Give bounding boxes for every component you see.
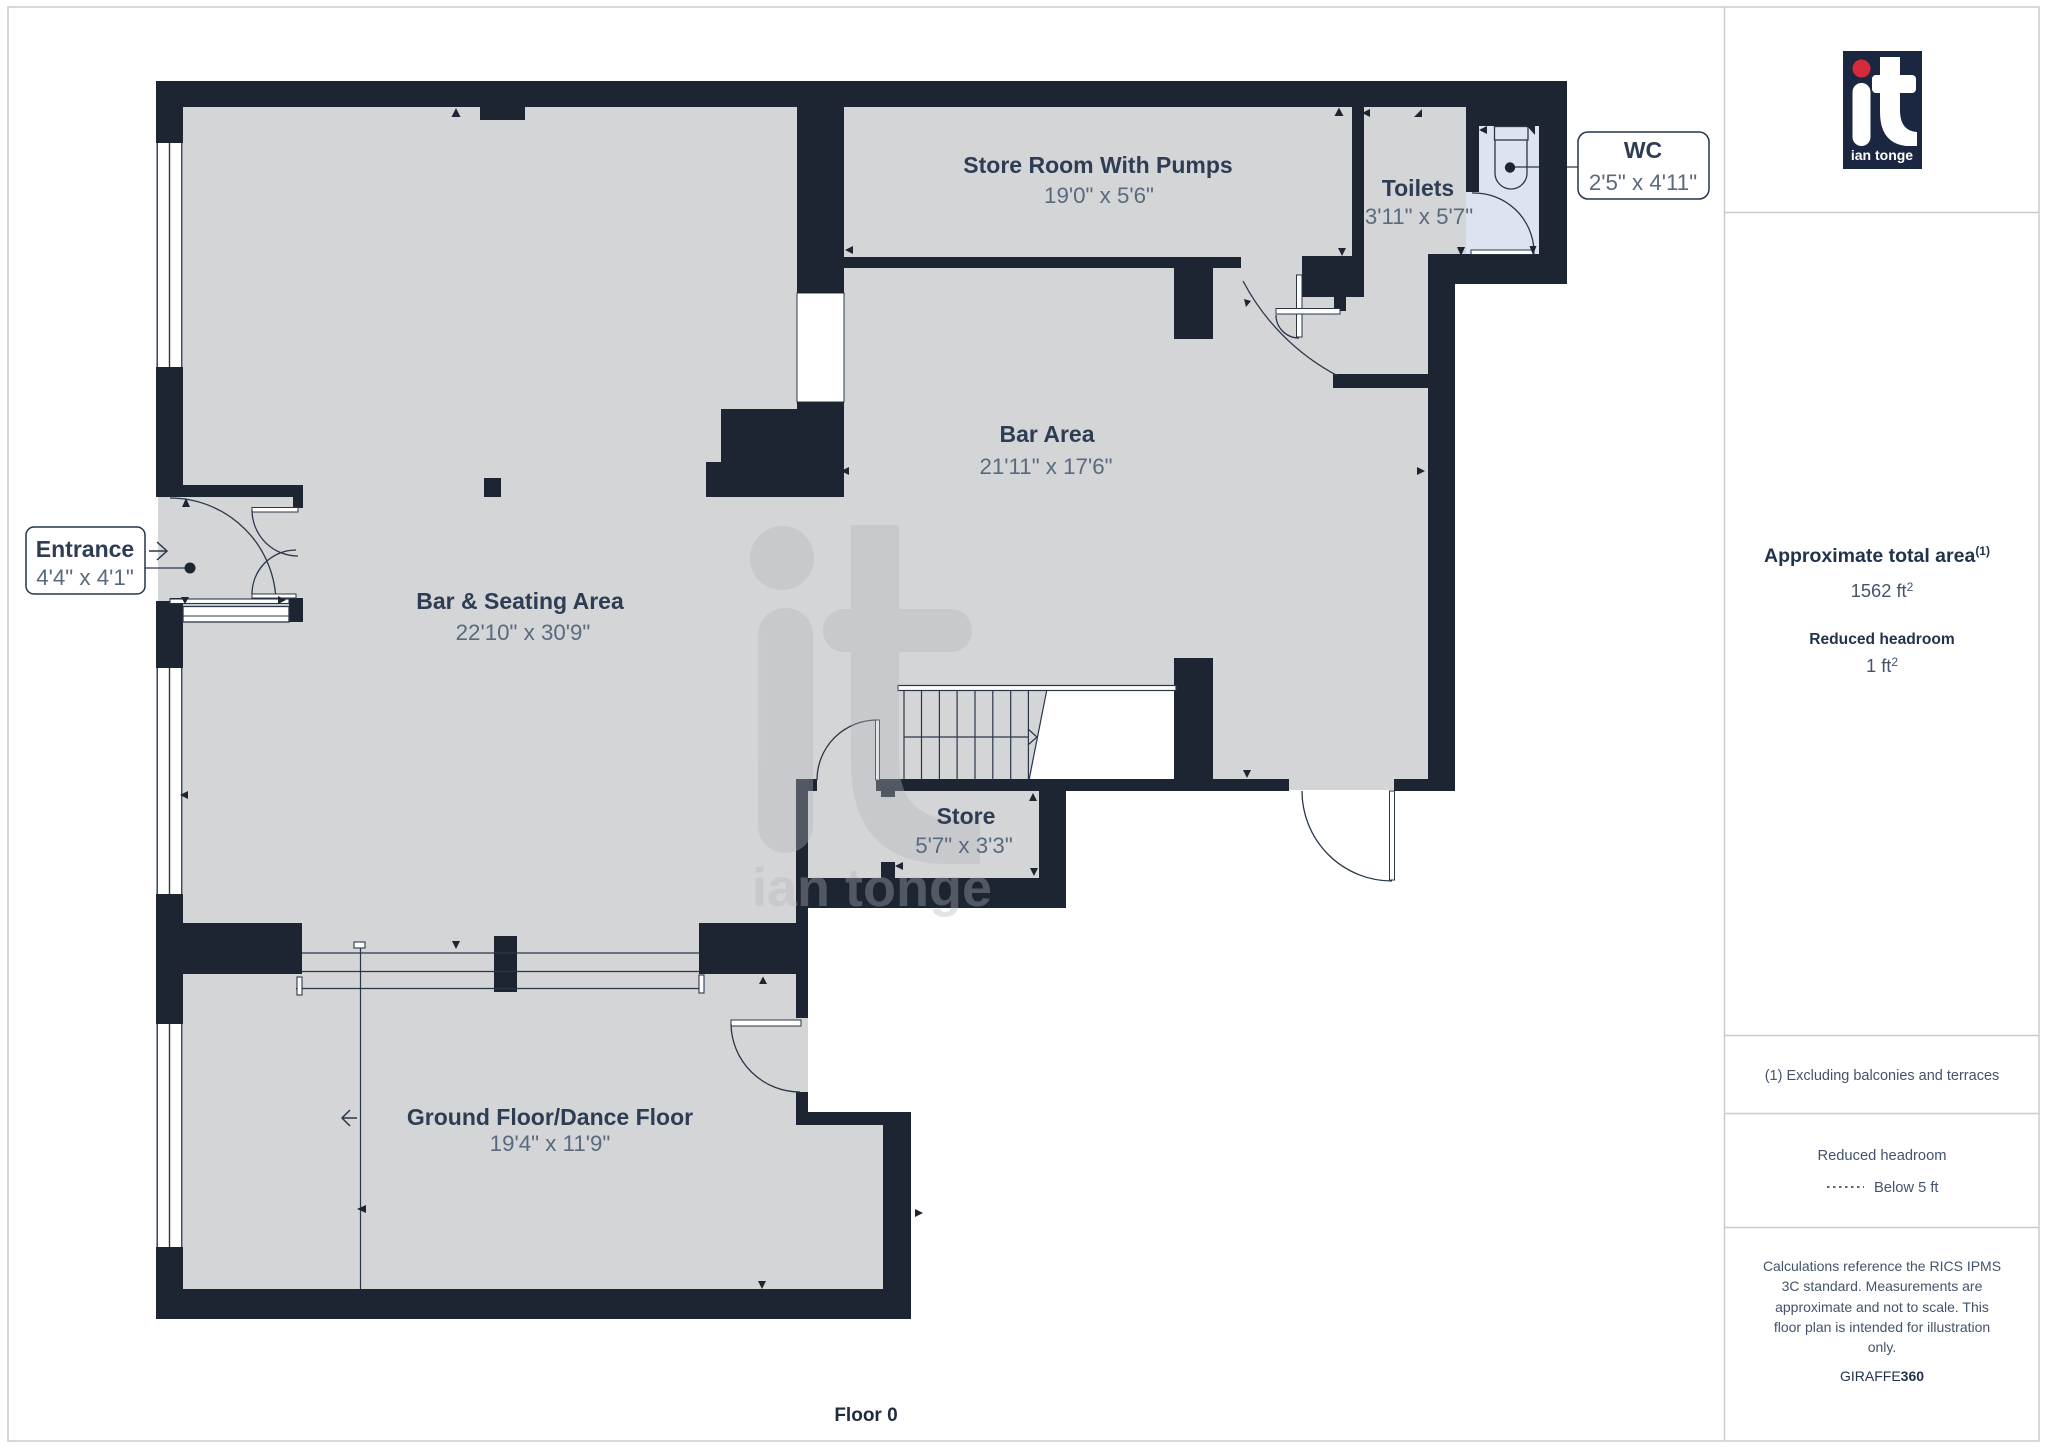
svg-text:Reduced headroom: Reduced headroom <box>1817 1148 1946 1164</box>
svg-text:Store Room With Pumps: Store Room With Pumps <box>963 152 1232 178</box>
svg-text:(1) Excluding balconies and te: (1) Excluding balconies and terraces <box>1765 1068 2000 1084</box>
svg-text:Floor 0: Floor 0 <box>834 1405 897 1426</box>
svg-text:4'4" x 4'1": 4'4" x 4'1" <box>36 565 133 590</box>
svg-text:3C standard. Measurements are: 3C standard. Measurements are <box>1782 1278 1983 1294</box>
svg-text:5'7" x 3'3": 5'7" x 3'3" <box>915 833 1012 858</box>
svg-text:2'5" x 4'11": 2'5" x 4'11" <box>1589 170 1697 195</box>
svg-text:Below 5 ft: Below 5 ft <box>1874 1180 1939 1196</box>
svg-text:21'11" x 17'6": 21'11" x 17'6" <box>979 454 1112 479</box>
svg-text:approximate and not to scale.: approximate and not to scale. This <box>1775 1299 1989 1315</box>
svg-text:Reduced headroom: Reduced headroom <box>1809 631 1955 648</box>
svg-text:Bar Area: Bar Area <box>999 421 1094 447</box>
svg-text:Ground Floor/Dance Floor: Ground Floor/Dance Floor <box>407 1104 693 1130</box>
svg-text:19'0" x 5'6": 19'0" x 5'6" <box>1044 183 1154 208</box>
svg-text:3'11" x 5'7": 3'11" x 5'7" <box>1365 204 1473 229</box>
svg-text:ian tonge: ian tonge <box>752 858 992 918</box>
svg-text:Store: Store <box>937 803 996 829</box>
svg-text:1562 ft2: 1562 ft2 <box>1851 580 1914 601</box>
svg-text:Calculations reference the RIC: Calculations reference the RICS IPMS <box>1763 1258 2001 1274</box>
svg-text:WC: WC <box>1624 137 1662 163</box>
svg-text:Approximate total area(1): Approximate total area(1) <box>1764 544 1990 567</box>
svg-text:Entrance: Entrance <box>36 536 134 562</box>
svg-text:22'10" x 30'9": 22'10" x 30'9" <box>456 620 591 645</box>
svg-text:19'4" x 11'9": 19'4" x 11'9" <box>490 1131 611 1156</box>
svg-text:only.: only. <box>1868 1339 1897 1355</box>
svg-text:ian tonge: ian tonge <box>1851 147 1913 163</box>
svg-text:Toilets: Toilets <box>1382 175 1454 201</box>
svg-text:GIRAFFE360: GIRAFFE360 <box>1840 1368 1924 1384</box>
svg-text:floor plan is intended for ill: floor plan is intended for illustration <box>1774 1319 1990 1335</box>
svg-text:Bar & Seating Area: Bar & Seating Area <box>416 588 624 614</box>
